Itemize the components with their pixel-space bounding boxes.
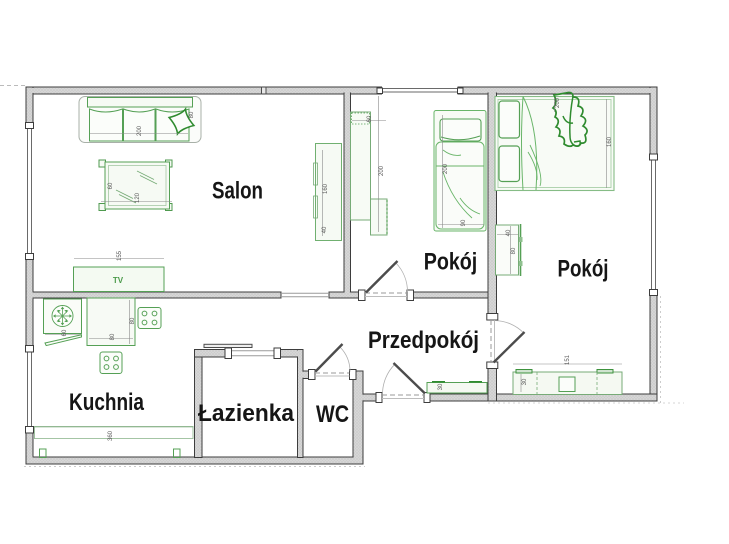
svg-text:Kuchnia: Kuchnia [69, 389, 145, 416]
svg-text:Pokój: Pokój [424, 249, 478, 276]
svg-text:Salon: Salon [212, 178, 263, 205]
svg-text:80: 80 [130, 317, 136, 324]
svg-text:30: 30 [522, 378, 528, 385]
svg-text:Łazienka: Łazienka [198, 400, 294, 427]
svg-text:120: 120 [135, 192, 141, 203]
svg-text:360: 360 [108, 430, 114, 441]
svg-text:60: 60 [367, 115, 373, 122]
svg-text:60: 60 [62, 329, 68, 336]
svg-text:40: 40 [322, 226, 328, 233]
svg-text:160: 160 [323, 183, 329, 194]
svg-text:60: 60 [108, 182, 114, 189]
svg-text:80: 80 [511, 247, 517, 254]
svg-text:Pokój: Pokój [558, 256, 609, 283]
svg-text:200: 200 [555, 97, 561, 108]
svg-text:Przedpokój: Przedpokój [368, 327, 479, 354]
svg-text:WC: WC [316, 401, 349, 428]
svg-text:151: 151 [565, 354, 571, 365]
svg-text:160: 160 [607, 136, 613, 147]
svg-text:80: 80 [110, 333, 116, 340]
svg-text:200: 200 [443, 163, 449, 174]
svg-text:80: 80 [189, 111, 195, 118]
svg-text:200: 200 [137, 125, 143, 136]
svg-text:155: 155 [117, 250, 123, 261]
svg-text:200: 200 [379, 165, 385, 176]
svg-text:40: 40 [506, 229, 512, 236]
svg-text:30: 30 [438, 383, 444, 390]
svg-text:TV: TV [113, 276, 124, 285]
svg-text:90: 90 [461, 219, 467, 226]
